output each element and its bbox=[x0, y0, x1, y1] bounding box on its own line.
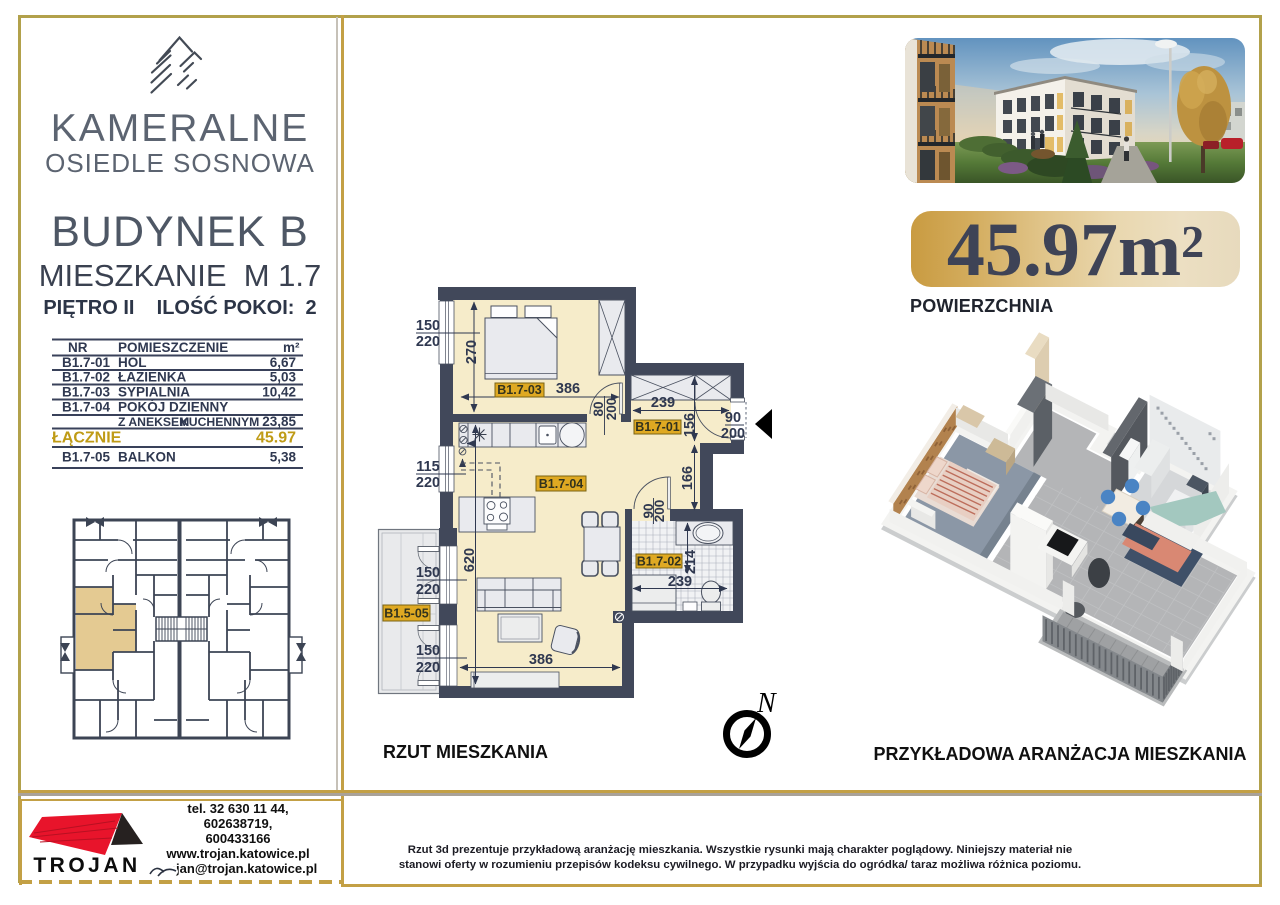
svg-text:239: 239 bbox=[668, 574, 692, 590]
svg-text:270: 270 bbox=[464, 340, 480, 364]
svg-text:SYPIALNIA: SYPIALNIA bbox=[118, 385, 190, 400]
svg-text:B1.7-03: B1.7-03 bbox=[497, 383, 542, 397]
svg-text:B1.5-05: B1.5-05 bbox=[384, 607, 429, 621]
svg-text:220: 220 bbox=[416, 334, 440, 350]
svg-text:B1.7-04: B1.7-04 bbox=[62, 400, 111, 415]
svg-text:386: 386 bbox=[556, 381, 580, 397]
svg-text:Z ANEKSEM: Z ANEKSEM bbox=[118, 415, 189, 429]
svg-text:6,67: 6,67 bbox=[270, 355, 296, 370]
svg-text:150: 150 bbox=[416, 318, 440, 334]
svg-text:200: 200 bbox=[721, 426, 745, 442]
svg-text:B1.7-01: B1.7-01 bbox=[635, 420, 680, 434]
svg-text:B1.7-05: B1.7-05 bbox=[62, 450, 111, 465]
svg-text:HOL: HOL bbox=[118, 355, 147, 370]
svg-text:200: 200 bbox=[604, 398, 619, 421]
svg-text:386: 386 bbox=[529, 652, 553, 668]
svg-text:45.97: 45.97 bbox=[256, 430, 296, 447]
svg-text:B1.7-03: B1.7-03 bbox=[62, 385, 111, 400]
svg-text:10,42: 10,42 bbox=[262, 385, 296, 400]
svg-text:150: 150 bbox=[416, 643, 440, 659]
svg-text:ŁĄCZNIE: ŁĄCZNIE bbox=[52, 430, 122, 447]
svg-text:5,38: 5,38 bbox=[270, 450, 297, 465]
svg-text:POKÓJ DZIENNY: POKÓJ DZIENNY bbox=[118, 400, 228, 415]
svg-text:POMIESZCZENIE: POMIESZCZENIE bbox=[118, 340, 228, 355]
svg-text:200: 200 bbox=[652, 500, 667, 523]
svg-text:N: N bbox=[756, 688, 777, 719]
svg-text:23,85: 23,85 bbox=[262, 414, 296, 429]
svg-text:KUCHENNYM: KUCHENNYM bbox=[180, 415, 259, 429]
svg-text:115: 115 bbox=[416, 459, 439, 475]
svg-text:B1.7-01: B1.7-01 bbox=[62, 355, 111, 370]
svg-text:239: 239 bbox=[651, 395, 675, 411]
svg-text:220: 220 bbox=[416, 660, 440, 676]
svg-text:NR: NR bbox=[68, 340, 88, 355]
svg-text:220: 220 bbox=[416, 582, 440, 598]
svg-text:BALKON: BALKON bbox=[118, 450, 176, 465]
svg-text:5,03: 5,03 bbox=[270, 370, 297, 385]
svg-text:166: 166 bbox=[680, 466, 696, 490]
svg-text:B1.7-02: B1.7-02 bbox=[62, 370, 110, 385]
svg-text:156: 156 bbox=[682, 413, 698, 437]
svg-text:90: 90 bbox=[725, 410, 741, 426]
svg-text:ŁAZIENKA: ŁAZIENKA bbox=[118, 370, 186, 385]
svg-text:220: 220 bbox=[416, 475, 440, 491]
svg-text:B1.7-04: B1.7-04 bbox=[539, 477, 584, 491]
svg-text:214: 214 bbox=[683, 550, 699, 574]
svg-text:150: 150 bbox=[416, 565, 440, 581]
svg-text:620: 620 bbox=[462, 548, 478, 572]
svg-text:m²: m² bbox=[283, 340, 300, 355]
svg-text:B1.7-02: B1.7-02 bbox=[637, 555, 682, 569]
